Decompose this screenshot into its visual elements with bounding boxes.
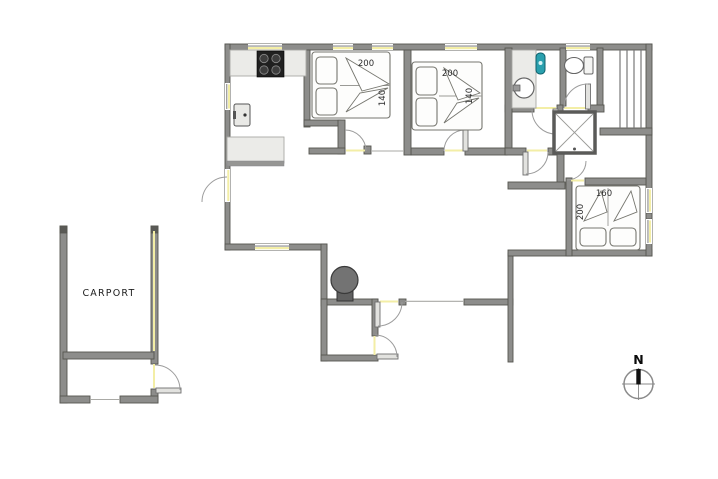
bed2-width-label: 140 [465, 88, 475, 104]
bedroom3-door-arc [567, 161, 586, 180]
door-opening-kitchen-west [225, 169, 230, 202]
pillow-icon [316, 57, 337, 84]
stove-burner-icon [260, 54, 268, 62]
bedroom2-door-threshold [445, 150, 464, 152]
compass-rose [622, 368, 655, 400]
bed1-length-label: 200 [358, 59, 374, 69]
window-kitchen-west [225, 83, 230, 110]
window-wc-north [566, 44, 590, 50]
bathroom [512, 50, 545, 108]
pillow-icon [416, 67, 437, 95]
shower-drain-icon [573, 148, 576, 151]
entry-inner-door-arc [378, 302, 402, 326]
hall-door-threshold [527, 150, 547, 152]
bedroom1-door-arc [345, 130, 366, 151]
bed3-length-label: 200 [576, 204, 586, 220]
wood-stove [331, 267, 358, 302]
water-heater-dot [539, 61, 543, 65]
utility-room-slats [620, 50, 641, 128]
window-bedroom3-east-a [646, 188, 652, 213]
carport-side-opening [153, 231, 155, 351]
toilet-tank-icon [584, 57, 593, 74]
wc [565, 57, 594, 74]
hall-door-leaf [523, 152, 528, 175]
bedroom1-door-threshold [346, 150, 365, 152]
kitchen-sink-unit [234, 104, 250, 126]
stove-burner-icon [272, 66, 280, 74]
carport-label: CARPORT [82, 288, 135, 299]
pillow-icon [316, 88, 337, 115]
shed-door-leaf [156, 388, 181, 393]
bed2-length-label: 200 [442, 69, 458, 79]
shower [554, 112, 595, 153]
hall-door-arc [526, 152, 548, 174]
shed-door-arc [155, 365, 180, 390]
kitchen-island-counter [227, 137, 284, 163]
toilet-icon [565, 58, 584, 74]
stove-burner-icon [260, 66, 268, 74]
pillow-icon [610, 228, 636, 246]
window-kitchen-north [248, 44, 282, 50]
doors [155, 84, 591, 393]
stove-burner-icon [272, 54, 280, 62]
window-living-south [255, 244, 289, 250]
window-bedroom2-north [445, 44, 477, 50]
compass-needle-icon [636, 369, 640, 385]
floorplan-drawing: CARPORT N 200 140 200 140 160 200 [0, 0, 718, 479]
bed1-width-label: 140 [378, 90, 388, 106]
bed3-width-label: 160 [596, 189, 612, 199]
window-bedroom3-east-b [646, 219, 652, 244]
kitchen [227, 50, 306, 166]
floorplan-canvas: CARPORT N 200 140 200 140 160 200 [0, 0, 718, 479]
wc-door-arc [564, 84, 588, 108]
pillow-icon [416, 98, 437, 126]
entry-outer-door-leaf [377, 354, 398, 359]
entry-door-threshold [374, 336, 376, 355]
bedroom3-door-threshold [571, 180, 584, 182]
wood-stove-icon [331, 267, 358, 294]
kitchen-entry-door-arc [202, 177, 227, 202]
wc-door-threshold [564, 107, 587, 109]
pillow-icon [580, 228, 606, 246]
sink-tap-icon [243, 113, 246, 116]
window-bedroom1-north-b [372, 44, 393, 50]
kitchen-island-edge [227, 161, 284, 166]
bedroom1-bed [312, 52, 390, 118]
window-bedroom1-north-a [333, 44, 353, 50]
shed-door-threshold [153, 364, 155, 388]
bedroom2-door-arc [444, 130, 465, 151]
entry-inner-door-leaf [375, 302, 380, 327]
north-label: N [633, 352, 643, 367]
carport-walls [60, 226, 158, 403]
entry-inner-door-threshold [380, 301, 398, 303]
washbasin-tap-icon [513, 85, 520, 91]
wc-door-leaf [586, 84, 591, 109]
sink-handle-icon [233, 111, 236, 119]
